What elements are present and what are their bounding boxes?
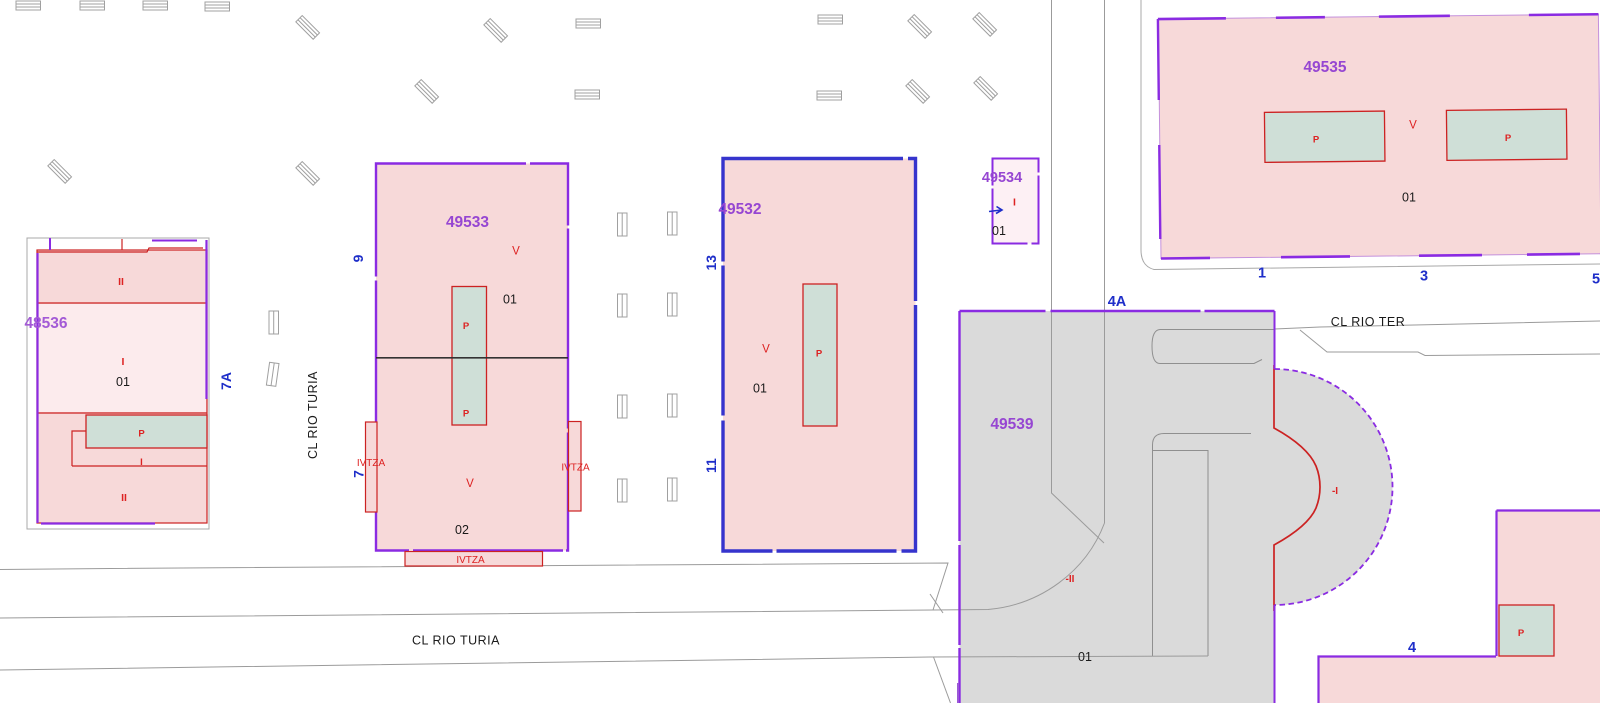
svg-text:P: P: [463, 409, 470, 420]
svg-text:1: 1: [1258, 266, 1266, 282]
svg-text:P: P: [1518, 628, 1525, 639]
svg-text:49539: 49539: [990, 416, 1033, 433]
svg-text:48536: 48536: [24, 315, 67, 332]
svg-text:I: I: [122, 356, 125, 368]
svg-text:V: V: [466, 478, 474, 490]
svg-text:49534: 49534: [982, 170, 1022, 186]
svg-text:P: P: [463, 321, 470, 332]
svg-text:IVTZA: IVTZA: [561, 463, 590, 474]
svg-text:4: 4: [1408, 640, 1416, 656]
svg-text:P: P: [1313, 135, 1320, 146]
svg-text:I: I: [140, 457, 143, 468]
svg-text:IVTZA: IVTZA: [456, 555, 485, 566]
svg-text:01: 01: [753, 382, 767, 396]
svg-text:9: 9: [350, 254, 366, 262]
svg-text:01: 01: [503, 293, 517, 307]
svg-text:11: 11: [703, 458, 719, 473]
svg-text:49533: 49533: [446, 214, 489, 231]
svg-text:CL RIO TURIA: CL RIO TURIA: [412, 634, 500, 648]
svg-text:I: I: [1013, 197, 1016, 209]
svg-text:01: 01: [116, 375, 130, 389]
svg-text:7: 7: [351, 470, 367, 478]
svg-text:4A: 4A: [1108, 294, 1127, 310]
svg-text:13: 13: [703, 255, 719, 271]
svg-text:3: 3: [1420, 269, 1428, 285]
svg-text:5: 5: [1592, 272, 1600, 288]
svg-text:-I: -I: [1332, 486, 1338, 497]
svg-text:-II: -II: [1066, 574, 1075, 585]
svg-text:7A: 7A: [218, 372, 234, 390]
svg-text:01: 01: [1402, 191, 1416, 205]
svg-text:II: II: [121, 492, 127, 504]
svg-text:01: 01: [1078, 650, 1092, 664]
svg-text:CL RIO TER: CL RIO TER: [1331, 315, 1405, 329]
svg-text:P: P: [816, 349, 823, 360]
svg-text:P: P: [1505, 133, 1512, 144]
svg-text:IVTZA: IVTZA: [357, 458, 386, 469]
svg-text:II: II: [118, 276, 124, 288]
svg-text:V: V: [1409, 120, 1417, 132]
svg-text:49532: 49532: [718, 201, 761, 218]
svg-text:V: V: [512, 246, 520, 258]
svg-text:V: V: [762, 344, 770, 356]
svg-text:49535: 49535: [1303, 59, 1346, 76]
svg-text:01: 01: [992, 224, 1006, 238]
svg-text:P: P: [138, 429, 145, 440]
svg-text:CL RIO TURIA: CL RIO TURIA: [306, 371, 320, 459]
svg-text:02: 02: [455, 523, 469, 537]
